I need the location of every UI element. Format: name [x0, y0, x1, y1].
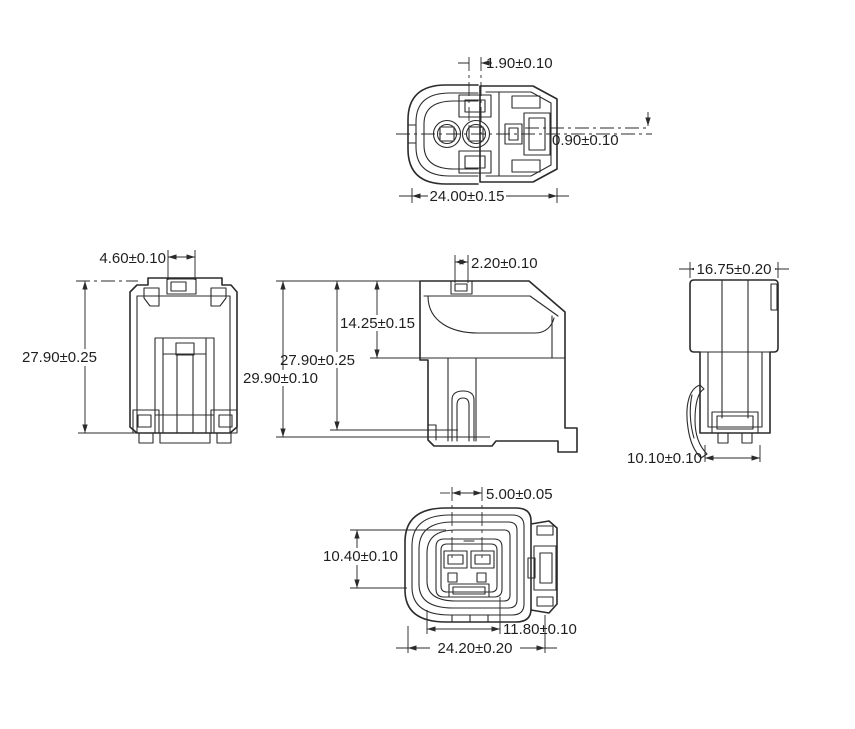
- dimension-label: 5.00±0.05: [486, 486, 553, 503]
- drawing-canvas: 1.90±0.10 0.90±0.10 24.00±0.15 4.60±0.10: [0, 0, 855, 729]
- dimension-label: 24.00±0.15: [430, 188, 505, 205]
- dimension-label: 11.80±0.10: [503, 621, 577, 638]
- dimension-label: 0.90±0.10: [552, 132, 619, 149]
- dimension-label: 29.90±0.10: [243, 370, 318, 387]
- dimension-label: 10.40±0.10: [323, 548, 398, 565]
- front-view-details: [133, 279, 237, 443]
- dimension-label: 1.90±0.10: [486, 55, 553, 72]
- dim-inner-width: 11.80±0.10: [427, 597, 577, 638]
- dimension-label: 2.20±0.10: [471, 255, 538, 272]
- dimension-label: 24.20±0.20: [438, 640, 513, 657]
- dim-body-width: 16.75±0.20: [679, 261, 789, 278]
- bottom-view: 5.00±0.05 10.40±0.10 11.80±0.10 24.20±0.…: [321, 486, 577, 657]
- dim-tab-width: 2.20±0.10: [455, 255, 538, 283]
- front-view: 4.60±0.10 27.90±0.25: [20, 250, 237, 443]
- dimension-label: 16.75±0.20: [697, 261, 772, 278]
- side-view-outline: [420, 281, 577, 452]
- dim-body-height: 27.90±0.25: [20, 281, 145, 433]
- bottom-view-centerlines: [452, 487, 482, 560]
- side-view: 2.20±0.10 14.25±0.15 27.90±0.25 29.90±0.…: [241, 255, 577, 452]
- dim-terminal-pitch: 5.00±0.05: [440, 486, 553, 503]
- dim-body-height: 27.90±0.25: [278, 281, 458, 430]
- bottom-view-details: [412, 515, 556, 622]
- dim-overall-width: 24.00±0.15: [399, 188, 569, 205]
- dimension-label: 14.25±0.15: [340, 315, 415, 332]
- top-view: 1.90±0.10 0.90±0.10 24.00±0.15: [396, 55, 652, 205]
- dimension-label: 27.90±0.25: [22, 349, 97, 366]
- dim-terminal-offset: 1.90±0.10: [458, 55, 553, 72]
- dimension-lines: [168, 250, 195, 280]
- dimension-lines: [455, 255, 468, 283]
- drawing-sheet: 1.90±0.10 0.90±0.10 24.00±0.15 4.60±0.10: [0, 0, 855, 729]
- dimension-label: 27.90±0.25: [280, 352, 355, 369]
- rear-view: 16.75±0.20 10.10±0.10: [627, 261, 789, 467]
- dimension-label: 10.10±0.10: [627, 450, 702, 467]
- dim-upper-height: 14.25±0.15: [338, 281, 426, 358]
- side-view-details: [420, 281, 565, 441]
- dimension-label: 4.60±0.10: [99, 250, 166, 267]
- dimension-lines: [705, 445, 760, 462]
- rear-view-outline: [690, 280, 778, 433]
- dim-latch-width: 4.60±0.10: [99, 250, 195, 280]
